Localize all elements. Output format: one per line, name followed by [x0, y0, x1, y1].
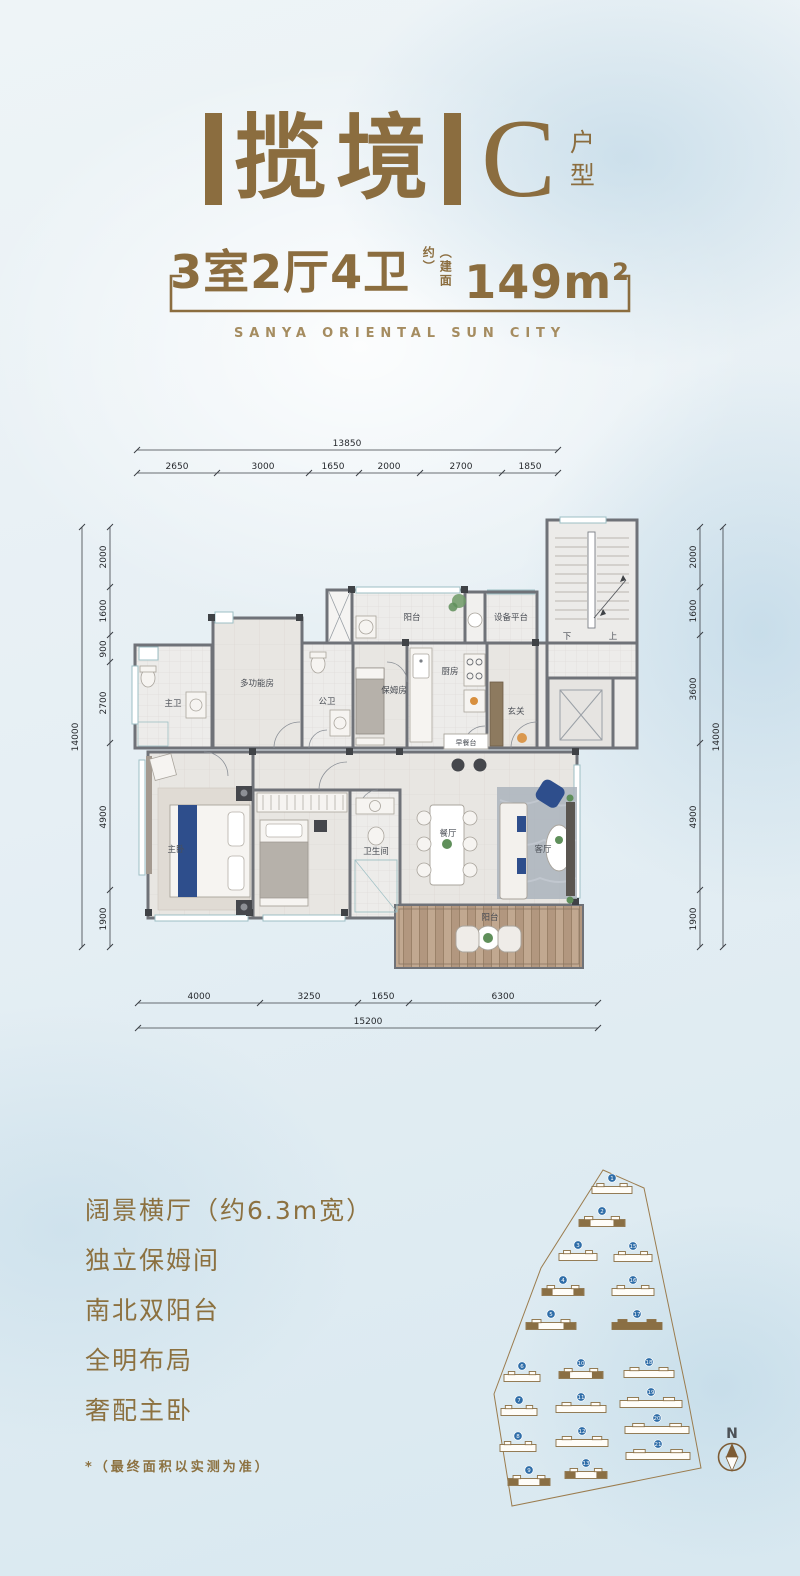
project-name: 揽境: [234, 104, 438, 214]
chair: [417, 837, 431, 851]
dim: 1650: [372, 992, 395, 1002]
english-tagline: SANYA ORIENTAL SUN CITY: [0, 326, 800, 341]
chair: [417, 811, 431, 825]
site-building-number: 21: [655, 1442, 662, 1448]
site-building: 4: [542, 1276, 584, 1296]
compass-needle-north-icon: [726, 1443, 738, 1457]
site-building: 13: [565, 1459, 607, 1479]
site-building-number: 17: [634, 1312, 641, 1318]
page-title: 揽境 C 户 型: [0, 104, 800, 214]
stair-stringer: [588, 532, 595, 628]
dim-bottom-total: 15200: [354, 1017, 383, 1027]
dim: 1850: [519, 462, 542, 472]
dim: 900: [99, 640, 109, 657]
dim: 1900: [99, 907, 109, 930]
patio-chair: [498, 926, 521, 952]
pillow: [228, 812, 244, 846]
site-building-number: 5: [549, 1312, 553, 1318]
site-building-number: 19: [648, 1390, 655, 1396]
site-building: 3: [559, 1241, 597, 1261]
chair: [463, 863, 477, 877]
window: [356, 587, 460, 593]
feature-list: 阔景横厅（约6.3m宽） 独立保姆间 南北双阳台 全明布局 奢配主卧: [85, 1186, 373, 1436]
dim-top-total: 13850: [333, 439, 362, 449]
room-label-multifunction: 多功能房: [240, 678, 274, 689]
site-building-number: 1: [610, 1176, 614, 1182]
dim: 2700: [99, 691, 109, 714]
sink: [413, 654, 429, 678]
site-building: 11: [556, 1393, 606, 1413]
room-label-master-bedroom: 主卧: [167, 844, 185, 855]
tv-console: [566, 802, 575, 896]
dim: 2000: [378, 462, 401, 472]
site-building-number: 15: [630, 1244, 637, 1250]
site-building-number: 4: [561, 1278, 565, 1284]
site-building: 7: [501, 1396, 537, 1416]
room-elevator: [548, 678, 613, 748]
shoe-cabinet: [490, 682, 503, 746]
site-building-number: 3: [576, 1243, 580, 1249]
dim: 2650: [166, 462, 189, 472]
site-building-number: 11: [578, 1395, 585, 1401]
feature-item: 阔景横厅（约6.3m宽）: [85, 1186, 373, 1236]
dim-left-total: 14000: [71, 722, 81, 751]
site-building: 17: [612, 1310, 662, 1330]
chair: [463, 811, 477, 825]
bench: [356, 738, 384, 745]
room-corridor: [537, 643, 547, 748]
site-building: 1: [592, 1174, 632, 1194]
floorplan-poster: 揽境 C 户 型 3室2厅4卫 （建面约） 149m2 SANYA ORIENT…: [0, 0, 800, 1576]
window: [132, 666, 138, 724]
stool: [452, 759, 465, 772]
site-building: 16: [612, 1276, 654, 1296]
basin: [468, 613, 482, 627]
site-building-number: 16: [630, 1278, 637, 1284]
room-label-bath3: 卫生间: [363, 846, 389, 857]
wardrobe: [257, 793, 347, 812]
unit-word-bottom: 型: [570, 162, 595, 189]
window-box: [139, 647, 158, 660]
stove: [464, 654, 485, 686]
dim-top: 13850 2650 3000 1650 2000 2700 1850: [134, 439, 561, 476]
floorplan-svg: 13850 2650 3000 1650 2000 2700 1850 4000…: [60, 420, 760, 1050]
window: [560, 517, 606, 523]
site-building-number: 20: [654, 1416, 661, 1422]
toilet: [368, 827, 384, 845]
dim: 4000: [188, 992, 211, 1002]
stairs-up-label: 上: [609, 632, 618, 642]
dim: 6300: [492, 992, 515, 1002]
site-building-number: 6: [520, 1364, 524, 1370]
dim: 1650: [322, 462, 345, 472]
unit-word-top: 户: [570, 129, 595, 156]
compass-needle-south-icon: [726, 1457, 738, 1471]
room-label-south-balcony: 阳台: [481, 912, 498, 923]
decor-plate: [517, 733, 527, 743]
site-building: 19: [620, 1388, 682, 1408]
subtitle-underline-bracket: [168, 268, 632, 318]
site-building: 9: [508, 1466, 550, 1486]
feature-item: 南北双阳台: [85, 1286, 373, 1336]
window: [139, 760, 145, 875]
chair: [463, 837, 477, 851]
dim-bottom: 4000 3250 1650 6300 15200: [135, 992, 601, 1031]
side-table: [314, 820, 327, 832]
fruit-bowl: [470, 697, 478, 705]
feature-item: 奢配主卧: [85, 1386, 373, 1436]
pillow: [266, 824, 302, 837]
window-box: [215, 612, 233, 623]
site-building-number: 7: [517, 1398, 521, 1404]
site-building: 8: [500, 1432, 536, 1452]
siteplan-buildings: 1231541651761018711198122091321: [500, 1174, 690, 1486]
siteplan: 1231541651761018711198122091321 N: [480, 1162, 780, 1536]
site-building: 12: [556, 1427, 608, 1447]
site-building-number: 2: [600, 1209, 604, 1215]
site-building: 6: [504, 1362, 540, 1382]
site-building-number: 9: [527, 1468, 531, 1474]
site-building-number: 10: [578, 1361, 585, 1367]
dim: 1900: [689, 907, 699, 930]
pillow: [228, 856, 244, 890]
dim: 1600: [689, 599, 699, 622]
site-building-number: 13: [583, 1461, 590, 1467]
dim-right: 2000 1600 3600 4900 1900 14000: [689, 524, 726, 950]
site-building: 15: [614, 1242, 652, 1262]
patio-chair: [456, 926, 479, 952]
dim: 3000: [252, 462, 275, 472]
stairs-down-label: 下: [563, 632, 572, 642]
site-building: 10: [559, 1359, 603, 1379]
room-label-kitchen: 厨房: [441, 666, 458, 677]
table-plant: [442, 839, 452, 849]
dim-left: 2000 1600 900 2700 4900 1900 14000: [71, 524, 113, 950]
compass: N: [719, 1426, 746, 1471]
dim: 2000: [99, 545, 109, 568]
floorplan: 13850 2650 3000 1650 2000 2700 1850 4000…: [60, 420, 760, 1054]
sofa-cushion: [517, 858, 526, 874]
chair: [417, 863, 431, 877]
site-building-number: 8: [516, 1434, 520, 1440]
feature-item: 独立保姆间: [85, 1236, 373, 1286]
site-building-number: 18: [646, 1360, 653, 1366]
site-building: 21: [626, 1440, 690, 1460]
site-building: 5: [526, 1310, 576, 1330]
room-label-public-bath: 公卫: [318, 697, 336, 707]
room-lobby: [547, 643, 637, 678]
dim: 2000: [689, 545, 699, 568]
room-label-north-balcony: 阳台: [403, 612, 420, 623]
room-lobby-side: [613, 678, 637, 748]
room-label-living: 客厅: [534, 844, 552, 855]
site-building: 20: [625, 1414, 689, 1434]
curtain: [146, 756, 152, 874]
vanity: [330, 710, 350, 736]
stool: [474, 759, 487, 772]
dim: 3250: [298, 992, 321, 1002]
footnote: *（最终面积以实测为准）: [85, 1456, 271, 1475]
dim: 2700: [450, 462, 473, 472]
room-label-master-bath: 主卫: [164, 698, 182, 709]
feature-item: 全明布局: [85, 1336, 373, 1386]
room-label-foyer: 玄关: [507, 706, 525, 717]
site-building: 2: [579, 1207, 625, 1227]
site-building-number: 12: [579, 1429, 586, 1435]
title-bracket-right-icon: [444, 113, 461, 205]
dim: 1600: [99, 599, 109, 622]
site-building: 18: [624, 1358, 674, 1378]
compass-n-label: N: [726, 1426, 738, 1442]
room-label-equipment: 设备平台: [494, 612, 528, 623]
room-label-dining: 餐厅: [439, 829, 457, 839]
room-label-nanny: 保姆房: [381, 685, 407, 696]
title-bracket-left-icon: [205, 113, 222, 205]
window: [155, 915, 248, 921]
dim: 4900: [99, 805, 109, 828]
unit-letter: C: [481, 104, 556, 214]
siteplan-svg: 1231541651761018711198122091321 N: [480, 1162, 780, 1532]
window: [263, 915, 345, 921]
unit-type-suffix: 户 型: [570, 129, 595, 189]
vanity: [186, 692, 206, 718]
dim-right-total: 14000: [712, 722, 722, 751]
sofa-cushion: [517, 816, 526, 832]
dim: 4900: [689, 805, 699, 828]
dim: 3600: [689, 677, 699, 700]
room-label-breakfast-bar: 早餐台: [456, 738, 477, 747]
